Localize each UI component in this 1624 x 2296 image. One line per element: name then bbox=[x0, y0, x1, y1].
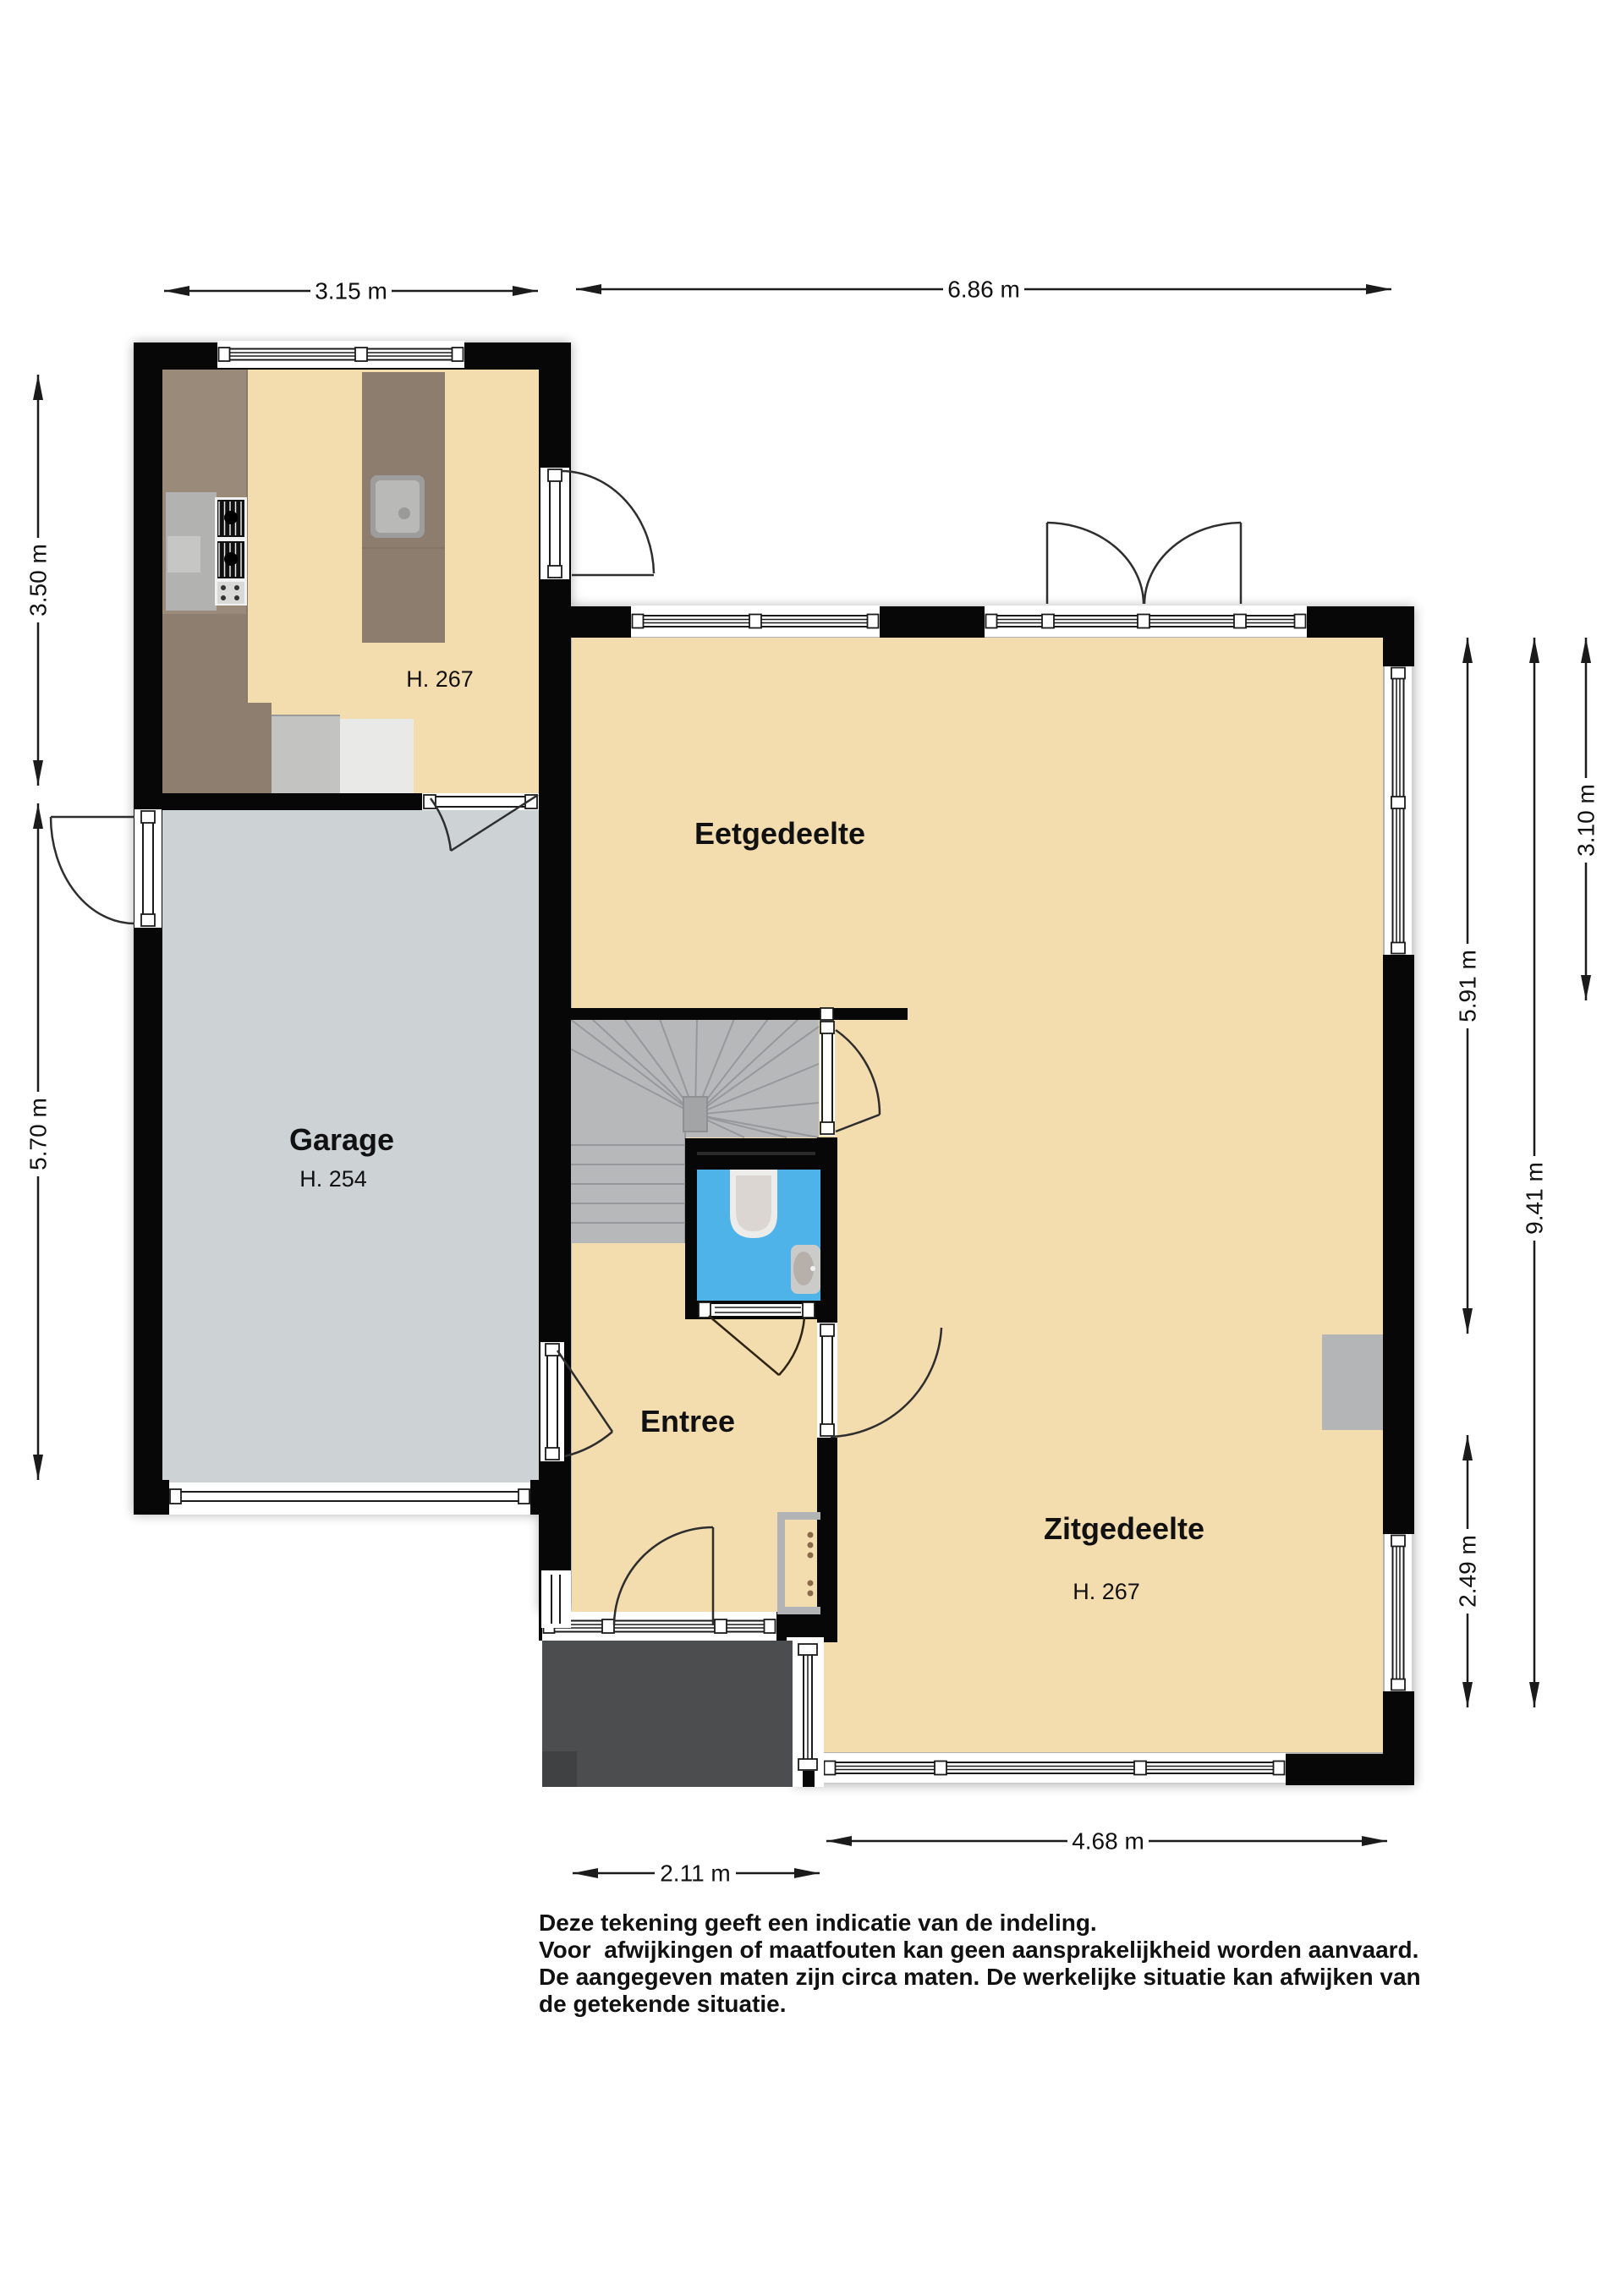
svg-text:H. 254: H. 254 bbox=[299, 1166, 367, 1192]
svg-text:4.68 m: 4.68 m bbox=[1072, 1828, 1144, 1855]
svg-text:2.11 m: 2.11 m bbox=[660, 1860, 731, 1887]
svg-text:5.91 m: 5.91 m bbox=[1455, 950, 1481, 1022]
svg-text:3.50 m: 3.50 m bbox=[25, 544, 52, 616]
svg-text:Voor afwijkingen of maatfoute: Voor afwijkingen of maatfouten kan geen … bbox=[539, 1937, 1418, 1963]
svg-text:6.86 m: 6.86 m bbox=[947, 277, 1020, 303]
svg-text:H. 267: H. 267 bbox=[1073, 1579, 1140, 1604]
svg-text:De aangegeven maten zijn circa: De aangegeven maten zijn circa maten. De… bbox=[539, 1964, 1421, 1990]
svg-text:Deze tekening geeft een indica: Deze tekening geeft een indicatie van de… bbox=[539, 1910, 1097, 1936]
svg-text:de getekende situatie.: de getekende situatie. bbox=[539, 1991, 787, 2017]
svg-text:Garage: Garage bbox=[289, 1122, 394, 1157]
svg-text:Entree: Entree bbox=[640, 1404, 735, 1438]
svg-text:9.41 m: 9.41 m bbox=[1522, 1162, 1548, 1235]
svg-text:2.49 m: 2.49 m bbox=[1455, 1535, 1481, 1608]
svg-text:Eetgedeelte: Eetgedeelte bbox=[694, 816, 865, 851]
svg-text:H. 267: H. 267 bbox=[406, 666, 474, 692]
svg-text:3.15 m: 3.15 m bbox=[315, 278, 387, 304]
svg-text:Zitgedeelte: Zitgedeelte bbox=[1044, 1511, 1204, 1546]
svg-text:3.10 m: 3.10 m bbox=[1573, 784, 1599, 857]
svg-text:5.70 m: 5.70 m bbox=[25, 1098, 52, 1170]
